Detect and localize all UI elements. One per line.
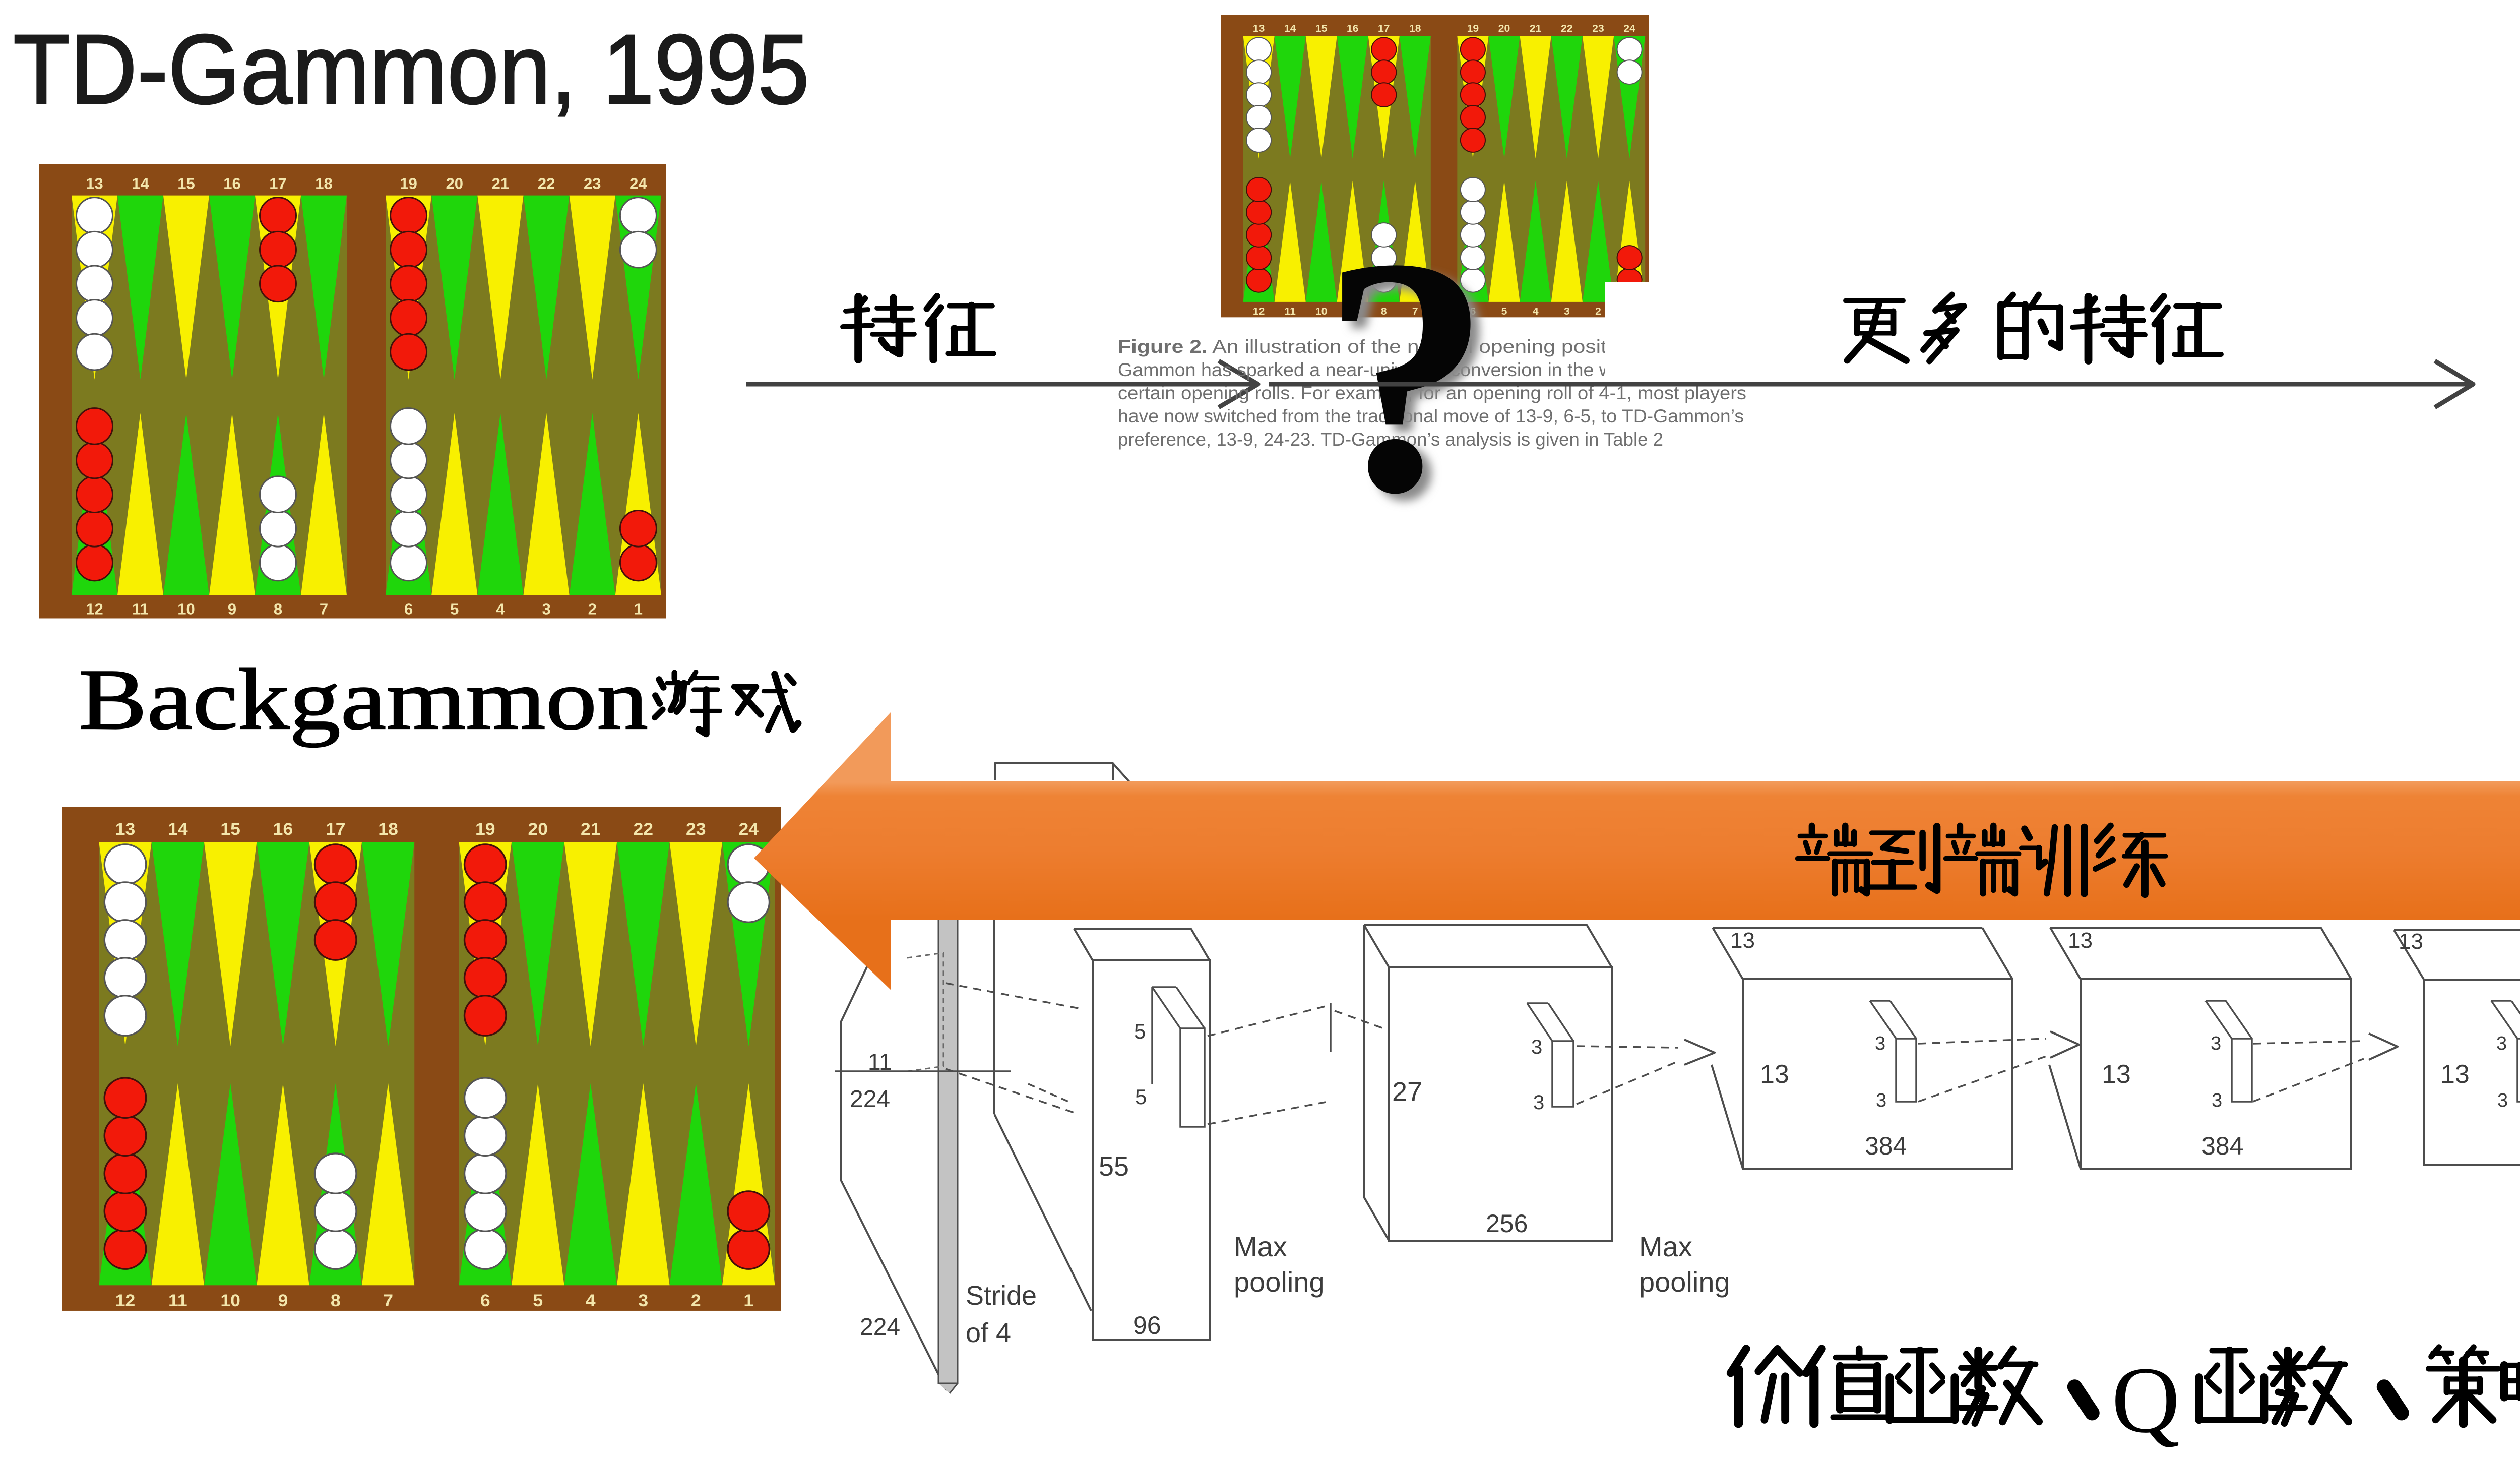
- svg-text:55: 55: [1099, 1151, 1129, 1182]
- svg-text:96: 96: [1133, 1311, 1161, 1340]
- svg-text:13: 13: [2102, 1060, 2131, 1089]
- svg-text:Stride: Stride: [966, 1281, 1037, 1311]
- svg-text:13: 13: [2440, 1060, 2470, 1089]
- svg-text:3: 3: [1531, 1036, 1542, 1058]
- svg-text:13: 13: [1730, 928, 1755, 953]
- svg-text:384: 384: [2201, 1132, 2243, 1160]
- svg-text:3: 3: [1533, 1091, 1544, 1114]
- svg-text:pooling: pooling: [1639, 1266, 1730, 1298]
- svg-text:224: 224: [860, 1314, 900, 1341]
- svg-text:Max: Max: [1639, 1231, 1692, 1262]
- svg-text:3: 3: [1876, 1090, 1886, 1111]
- svg-text:Max: Max: [1234, 1231, 1287, 1262]
- svg-text:5: 5: [1134, 1019, 1146, 1043]
- svg-text:384: 384: [1865, 1132, 1907, 1160]
- svg-text:13: 13: [2399, 929, 2423, 954]
- svg-text:13: 13: [2068, 928, 2093, 953]
- svg-text:Backgammon: Backgammon: [79, 652, 648, 748]
- svg-text:11: 11: [868, 1049, 892, 1075]
- svg-text:3: 3: [2212, 1090, 2222, 1111]
- svg-text:5: 5: [1135, 1085, 1147, 1109]
- svg-text:3: 3: [2211, 1033, 2221, 1054]
- svg-text:pooling: pooling: [1234, 1266, 1325, 1298]
- svg-text:3: 3: [1875, 1033, 1885, 1054]
- svg-text:?: ?: [1322, 188, 1491, 562]
- svg-text:of 4: of 4: [966, 1318, 1011, 1348]
- svg-text:13: 13: [1760, 1060, 1789, 1089]
- svg-text:3: 3: [2496, 1033, 2507, 1054]
- svg-text:256: 256: [1486, 1209, 1528, 1238]
- svg-text:224: 224: [850, 1086, 890, 1113]
- svg-text:Q: Q: [2112, 1347, 2180, 1452]
- svg-text:3: 3: [2497, 1090, 2508, 1111]
- svg-text:27: 27: [1392, 1077, 1422, 1107]
- svg-text:TD-Gammon, 1995: TD-Gammon, 1995: [13, 14, 809, 125]
